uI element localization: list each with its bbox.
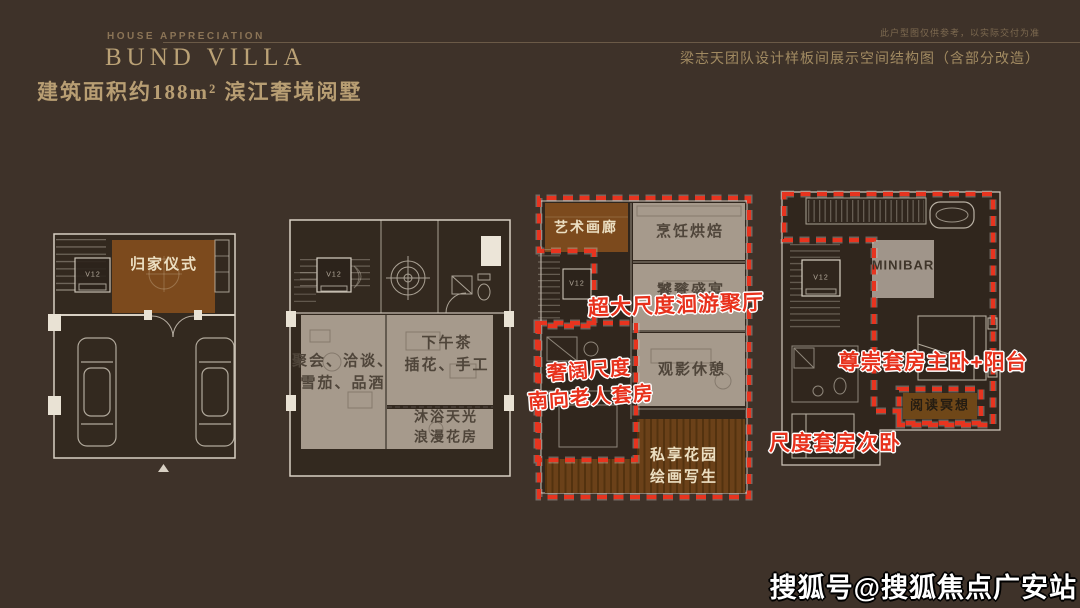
watermark: 搜狐号@搜狐焦点广安站 xyxy=(770,566,1077,605)
room-label-cooking: 烹饪烘焙 xyxy=(656,221,724,243)
elevator-label: V12 xyxy=(326,272,341,279)
room-label-sunbath-line1: 沐浴天光 xyxy=(414,407,478,427)
room-label-reading: 阅读冥想 xyxy=(910,397,970,416)
annotation-second-suite: 尺度套房次卧 xyxy=(769,427,901,457)
room-label-social-line2: 雪茄、品酒 xyxy=(292,372,394,394)
north-arrow-icon xyxy=(158,464,169,472)
room-label-minibar: MINIBAR xyxy=(872,257,935,276)
annotation-elder-suite: 奢阔尺度 南向老人套房 xyxy=(525,354,654,417)
subtitle-right: 梁志天团队设计样板间展示空间结构图（含部分改造） xyxy=(680,48,1040,68)
room-label-garden-line2: 绘画写生 xyxy=(650,466,718,488)
room-label-tea-line2: 插花、手工 xyxy=(404,354,489,376)
elevator-label: V12 xyxy=(569,281,584,288)
room-label-gallery: 艺术画廊 xyxy=(554,217,618,237)
room-label-sunbath-line2: 浪漫花房 xyxy=(414,427,478,447)
room-label-social: 聚会、洽谈、 雪茄、品酒 xyxy=(292,350,394,394)
room-label-garden: 私享花园 绘画写生 xyxy=(650,444,718,488)
header-rule xyxy=(163,42,1080,43)
brand-logo: BUND VILLA xyxy=(105,44,307,72)
room-label-tea: 下午茶 插花、手工 xyxy=(404,332,489,376)
room-label-social-line1: 聚会、洽谈、 xyxy=(292,350,394,372)
annotation-master-suite: 尊崇套房主卧+阳台 xyxy=(838,346,1027,376)
room-label-garden-line1: 私享花园 xyxy=(650,444,718,466)
annotation-loop-hall: 超大尺度洄游聚厅 xyxy=(588,286,765,322)
elevator-label: V12 xyxy=(813,275,828,282)
room-label-tea-line1: 下午茶 xyxy=(404,332,489,354)
room-label-sunbath: 沐浴天光 浪漫花房 xyxy=(414,407,478,448)
elevator-label: V12 xyxy=(85,272,100,279)
kicker-text: HOUSE APPRECIATION xyxy=(107,31,265,42)
page-title: 建筑面积约188m² 滨江奢境阅墅 xyxy=(37,76,363,106)
slide: HOUSE APPRECIATION BUND VILLA 此户型图仅供参考，以… xyxy=(0,0,1080,608)
disclaimer-text: 此户型图仅供参考，以实际交付为准 xyxy=(880,26,1040,39)
room-label-ritual: 归家仪式 xyxy=(130,254,198,276)
room-label-cinema: 观影休憩 xyxy=(658,359,726,381)
